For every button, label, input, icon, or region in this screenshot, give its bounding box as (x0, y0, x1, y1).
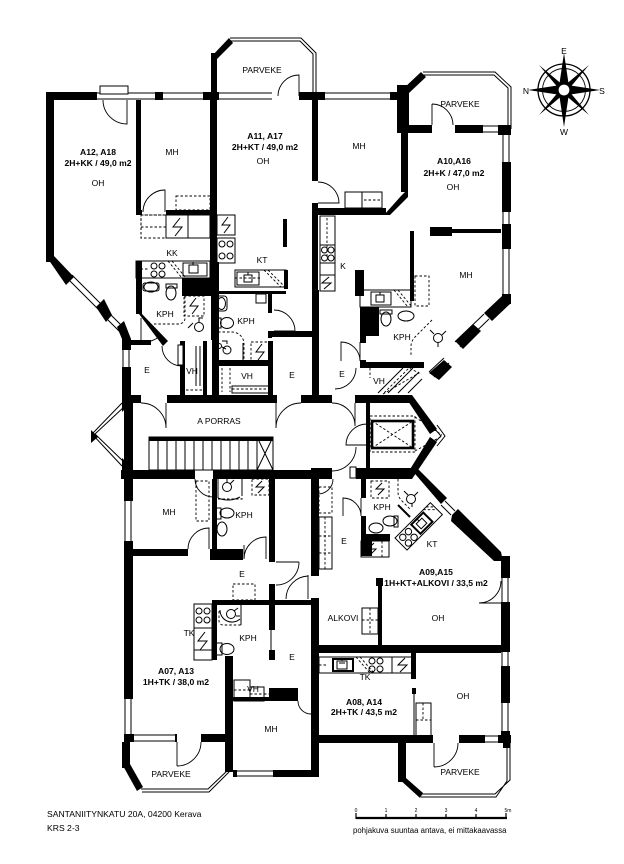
svg-text:A09,A15: A09,A15 (419, 567, 453, 577)
svg-text:OH: OH (92, 178, 105, 188)
svg-text:TK: TK (184, 628, 195, 638)
svg-text:E: E (289, 652, 295, 662)
svg-text:VH: VH (247, 684, 259, 694)
svg-text:3: 3 (445, 808, 448, 814)
svg-text:A PORRAS: A PORRAS (197, 416, 241, 426)
svg-text:5m: 5m (505, 808, 512, 814)
svg-text:VH: VH (241, 371, 253, 381)
svg-text:S: S (599, 86, 605, 96)
svg-text:A08, A14: A08, A14 (346, 697, 382, 707)
svg-text:PARVEKE: PARVEKE (440, 99, 480, 109)
svg-text:KPH: KPH (373, 502, 390, 512)
svg-text:VH: VH (186, 366, 198, 376)
svg-text:K: K (340, 261, 346, 271)
svg-text:VH: VH (373, 376, 385, 386)
svg-text:1H+KT+ALKOVI / 33,5 m2: 1H+KT+ALKOVI / 33,5 m2 (384, 578, 488, 588)
svg-text:KRS 2-3: KRS 2-3 (47, 823, 80, 833)
svg-text:E: E (239, 569, 245, 579)
svg-text:KK: KK (166, 248, 178, 258)
svg-text:OH: OH (432, 613, 445, 623)
svg-text:0: 0 (355, 808, 358, 814)
svg-text:2H+K / 47,0 m2: 2H+K / 47,0 m2 (424, 168, 485, 178)
svg-text:1H+TK / 38,0 m2: 1H+TK / 38,0 m2 (143, 677, 209, 687)
svg-text:A11, A17: A11, A17 (247, 131, 283, 141)
svg-text:MH: MH (352, 141, 365, 151)
svg-text:OH: OH (457, 691, 470, 701)
svg-text:KPH: KPH (239, 633, 256, 643)
svg-text:OH: OH (257, 156, 270, 166)
svg-text:SANTANIITYNKATU 20A, 04200 Ke: SANTANIITYNKATU 20A, 04200 Kerava (47, 809, 202, 819)
svg-text:2H+KK / 49,0 m2: 2H+KK / 49,0 m2 (64, 158, 131, 168)
svg-text:E: E (289, 370, 295, 380)
svg-text:MH: MH (162, 507, 175, 517)
svg-text:MH: MH (165, 147, 178, 157)
svg-text:2: 2 (415, 808, 418, 814)
svg-text:KPH: KPH (237, 316, 254, 326)
svg-text:E: E (339, 369, 345, 379)
svg-text:A12, A18: A12, A18 (80, 147, 116, 157)
svg-text:TK: TK (360, 672, 371, 682)
svg-text:MH: MH (264, 724, 277, 734)
svg-text:PARVEKE: PARVEKE (151, 769, 191, 779)
svg-text:ALKOVI: ALKOVI (328, 613, 359, 623)
svg-text:KT: KT (427, 539, 438, 549)
svg-text:2H+TK / 43,5 m2: 2H+TK / 43,5 m2 (331, 707, 397, 717)
svg-text:E: E (144, 365, 150, 375)
svg-text:N: N (523, 86, 529, 96)
svg-text:OH: OH (447, 182, 460, 192)
svg-text:pohjakuva suuntaa antava, ei m: pohjakuva suuntaa antava, ei mittakaavas… (353, 826, 507, 835)
svg-text:PARVEKE: PARVEKE (242, 65, 282, 75)
svg-text:2H+KT / 49,0 m2: 2H+KT / 49,0 m2 (232, 142, 298, 152)
svg-text:KPH: KPH (393, 332, 410, 342)
svg-text:E: E (561, 46, 567, 56)
svg-text:KPH: KPH (156, 309, 173, 319)
svg-text:MH: MH (459, 270, 472, 280)
svg-text:4: 4 (475, 808, 478, 814)
svg-text:1: 1 (385, 808, 388, 814)
svg-text:A07, A13: A07, A13 (158, 666, 194, 676)
svg-text:E: E (341, 536, 347, 546)
svg-text:KT: KT (257, 255, 268, 265)
svg-text:PARVEKE: PARVEKE (440, 767, 480, 777)
svg-text:W: W (560, 127, 568, 137)
svg-text:A10,A16: A10,A16 (437, 156, 471, 166)
svg-text:KPH: KPH (235, 510, 252, 520)
